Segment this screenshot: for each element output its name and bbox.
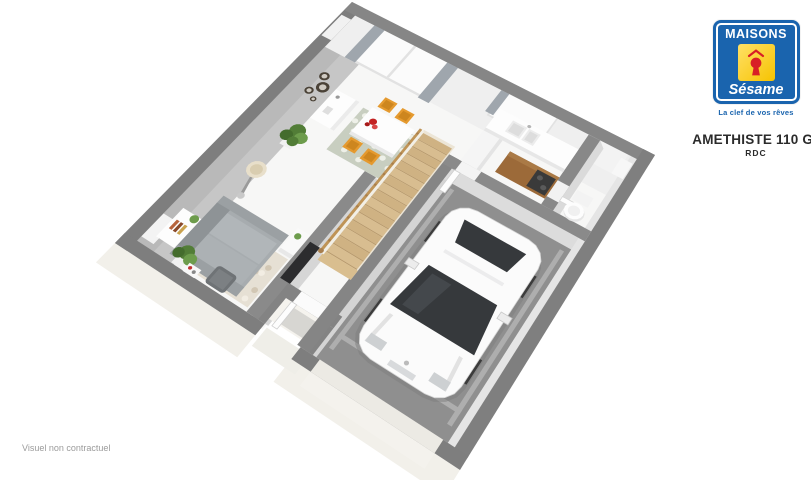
logo-script-name: Sésame [713, 82, 800, 98]
keyhole-icon [745, 49, 767, 77]
logo-name: MAISONS [713, 27, 800, 41]
floor-label: RDC [702, 148, 810, 158]
brand-logo: MAISONS Sésame La clef de vos rêves [705, 20, 807, 117]
disclaimer: Visuel non contractuel [22, 443, 110, 453]
logo-card: MAISONS Sésame [713, 20, 800, 104]
flowers [369, 119, 377, 125]
logo-badge [738, 44, 775, 81]
logo-tagline: La clef de vos rêves [705, 108, 807, 117]
floorplan-3d-render [0, 0, 811, 480]
plan-title: AMETHISTE 110 GI [692, 132, 811, 147]
